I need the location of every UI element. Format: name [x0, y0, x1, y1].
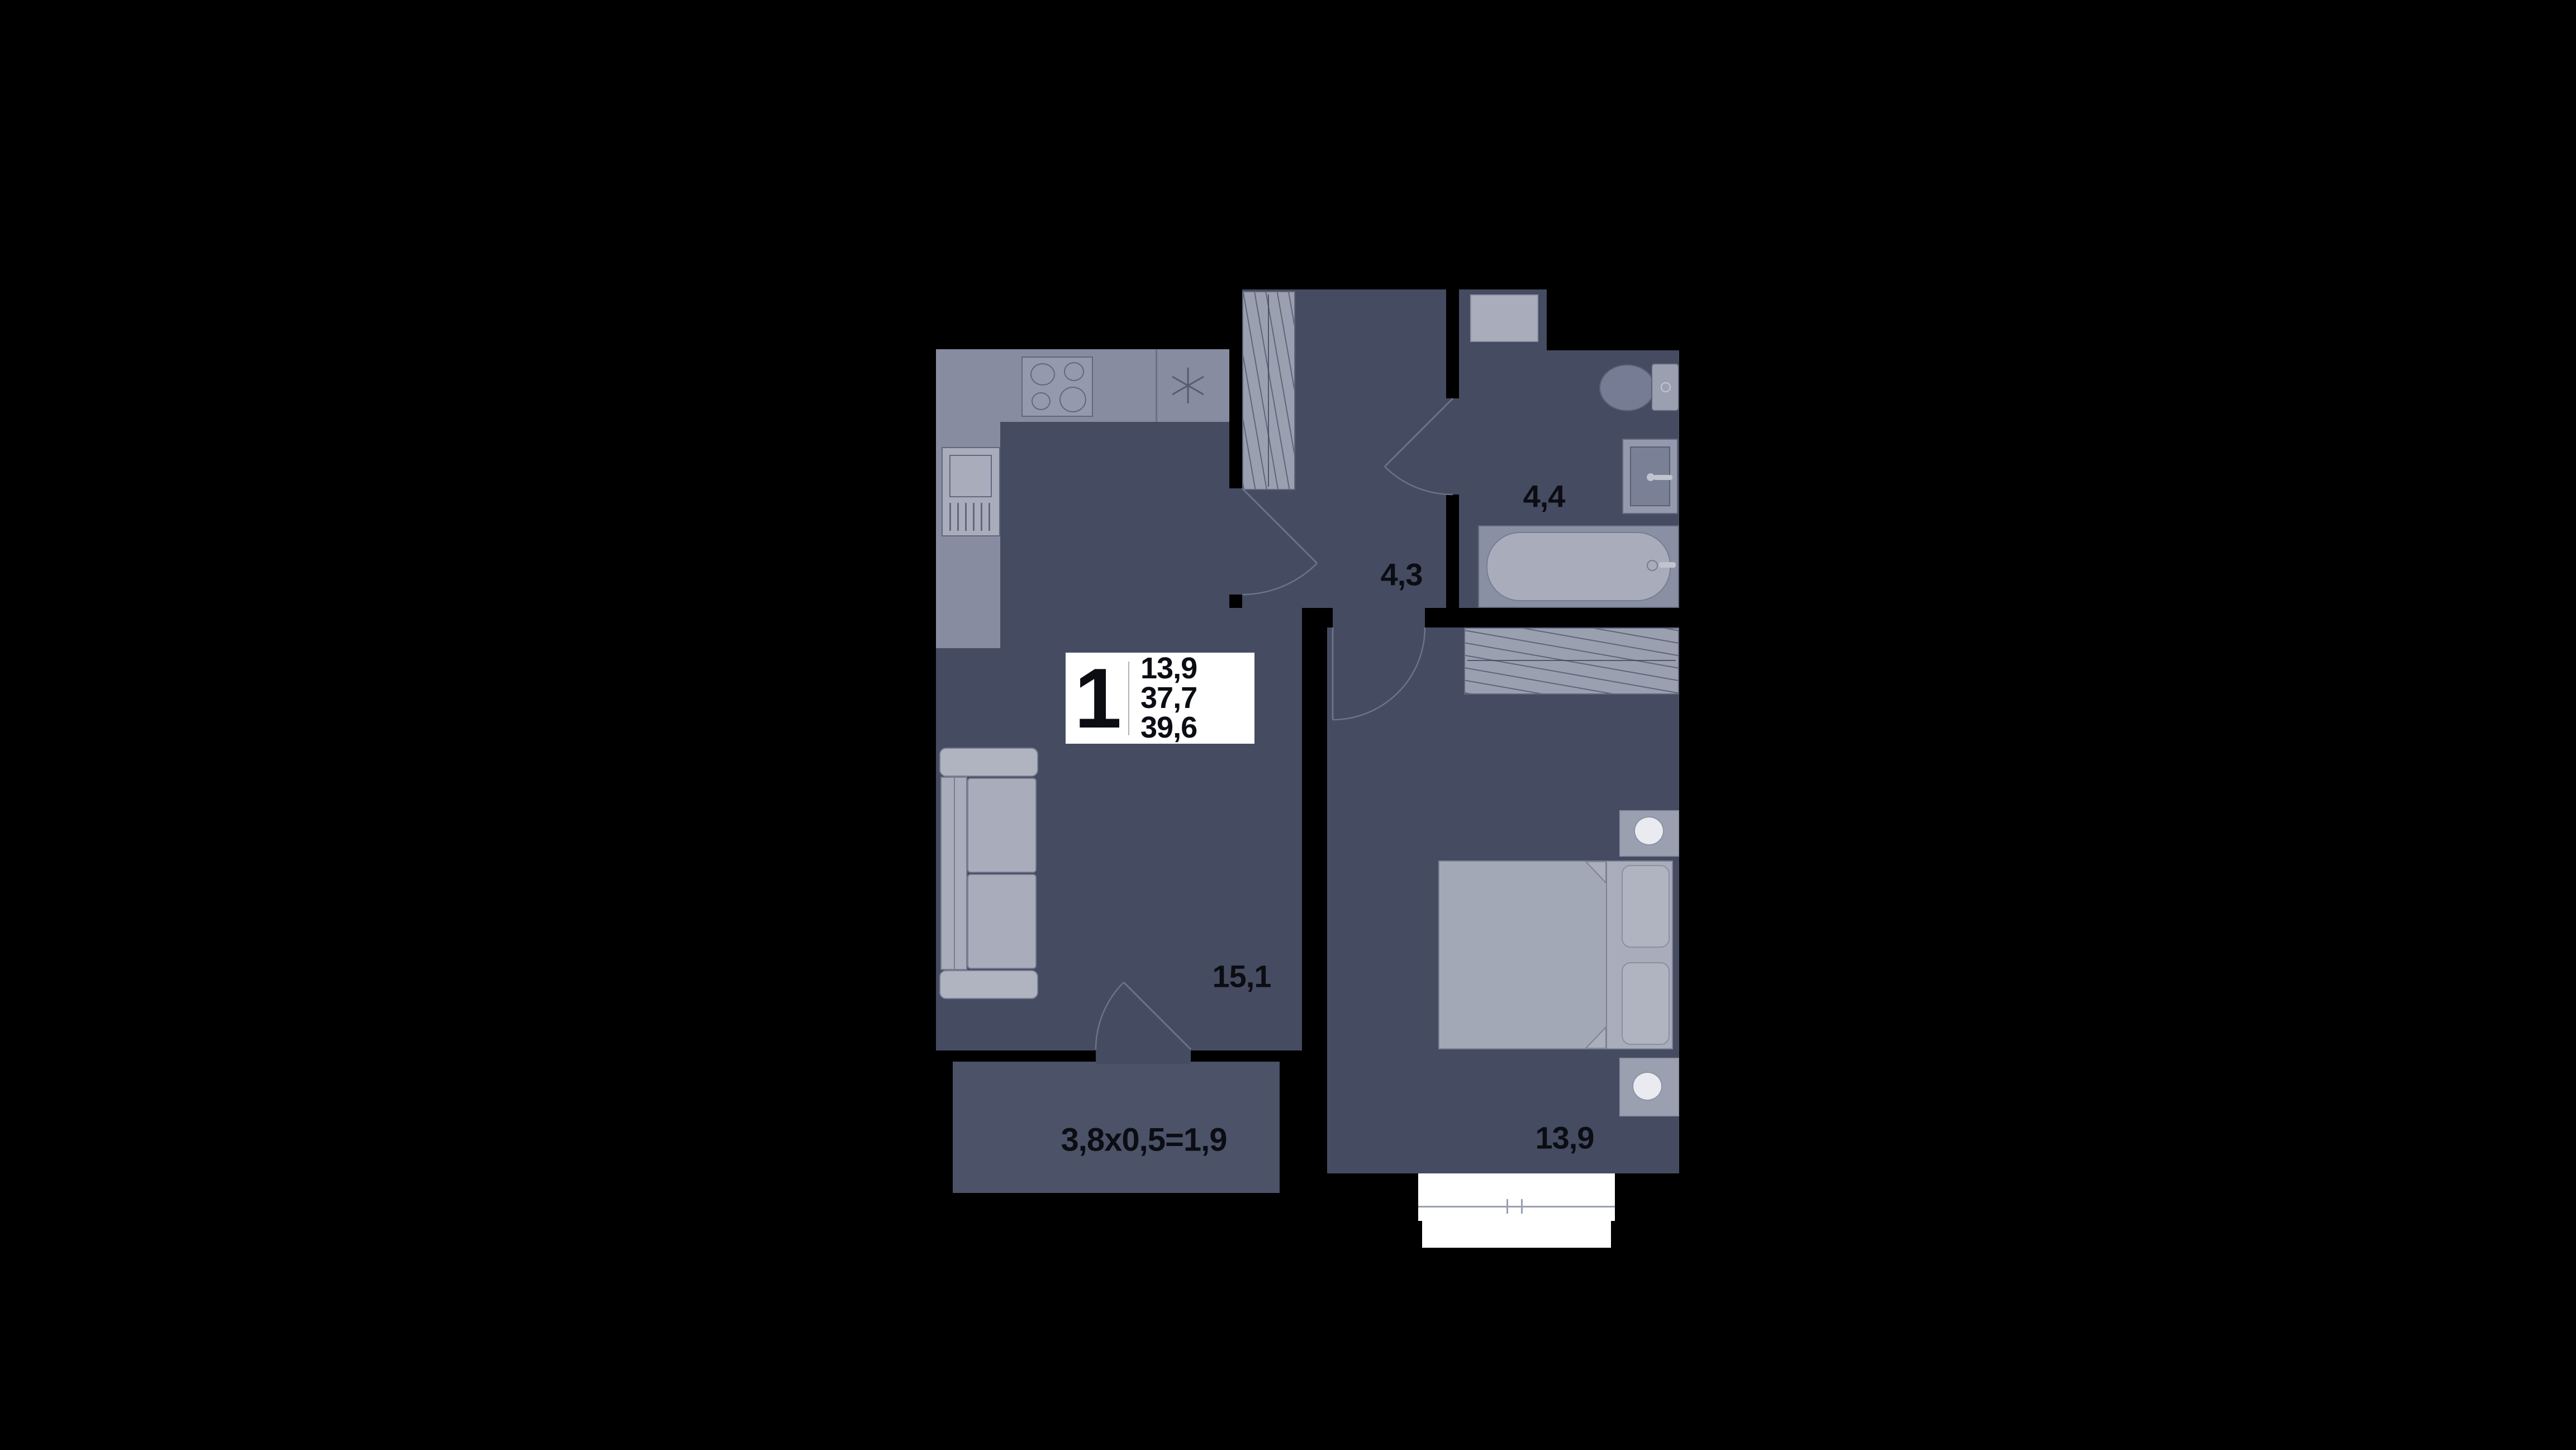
hallway-area-label: 4,3: [1381, 557, 1423, 593]
floor-plan-canvas: 1 13,9 37,7 39,6 4,3 4,4 15,1 13,9 3,8x0…: [0, 0, 2576, 1450]
balcony-area-formula-label: 3,8x0,5=1,9: [1061, 1121, 1227, 1159]
unit-info-card: 1 13,9 37,7 39,6: [1066, 653, 1254, 744]
living-kitchen-area-label: 15,1: [1213, 958, 1271, 995]
unit-areas: 13,9 37,7 39,6: [1129, 654, 1197, 743]
bed-fold-icon: [1586, 862, 1606, 1048]
unit-living-area: 13,9: [1140, 654, 1197, 683]
bathroom-area-label: 4,4: [1523, 478, 1565, 515]
bedroom-door-swing-icon: [1333, 627, 1425, 720]
balcony-door-swing-icon: [1096, 982, 1191, 1049]
plan-lines-overlay: [0, 0, 2576, 1450]
bathroom-door-swing-icon: [1385, 398, 1453, 495]
unit-area-excl-balcony: 37,7: [1140, 683, 1197, 713]
living-door-swing-icon: [1242, 488, 1317, 595]
unit-room-count: 1: [1066, 656, 1128, 741]
unit-total-area: 39,6: [1140, 713, 1197, 743]
bedroom-area-label: 13,9: [1536, 1120, 1594, 1156]
kitchen-sink-icon: [1172, 368, 1204, 403]
